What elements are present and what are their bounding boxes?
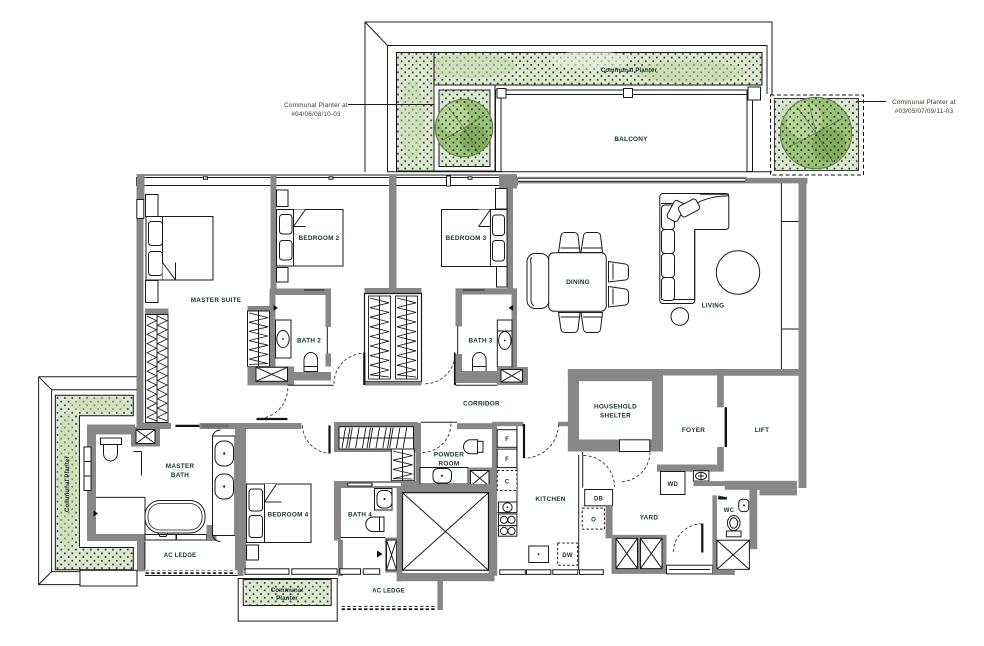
svg-text:Communal Planter at: Communal Planter at	[892, 99, 956, 106]
svg-text:BATH 2: BATH 2	[297, 338, 321, 345]
svg-text:BATH: BATH	[171, 472, 189, 479]
svg-text:F: F	[505, 457, 509, 463]
svg-text:HOUSEHOLD: HOUSEHOLD	[594, 404, 637, 411]
svg-text:MASTER SUITE: MASTER SUITE	[191, 297, 242, 304]
svg-text:C: C	[505, 480, 510, 486]
svg-text:WD: WD	[668, 482, 679, 488]
svg-text:AC LEDGE: AC LEDGE	[164, 553, 197, 559]
svg-text:BATH 3: BATH 3	[468, 338, 492, 345]
svg-text:BEDROOM 2: BEDROOM 2	[299, 235, 340, 242]
svg-text:KITCHEN: KITCHEN	[535, 496, 565, 503]
svg-text:BEDROOM 3: BEDROOM 3	[446, 235, 487, 242]
svg-text:POWDER: POWDER	[434, 452, 464, 459]
svg-text:#03/05/07/09/11-03: #03/05/07/09/11-03	[895, 108, 954, 115]
svg-text:DINING: DINING	[566, 279, 590, 286]
svg-text:ROOM: ROOM	[439, 461, 460, 468]
svg-text:Communal Planter at: Communal Planter at	[284, 102, 348, 109]
svg-text:LIVING: LIVING	[702, 303, 725, 310]
svg-text:BEDROOM 4: BEDROOM 4	[268, 512, 309, 519]
svg-text:AC LEDGE: AC LEDGE	[372, 589, 405, 595]
svg-text:BATH 4: BATH 4	[348, 512, 372, 519]
svg-text:MASTER: MASTER	[166, 463, 195, 470]
svg-text:Planter: Planter	[276, 596, 298, 602]
svg-text:O: O	[591, 518, 596, 524]
svg-text:FOYER: FOYER	[682, 427, 705, 434]
svg-text:LIFT: LIFT	[755, 427, 770, 434]
svg-text:Communal: Communal	[271, 588, 304, 594]
svg-text:F: F	[505, 437, 509, 443]
svg-text:#04/06/08/10-03: #04/06/08/10-03	[291, 111, 341, 118]
svg-text:YARD: YARD	[640, 515, 659, 522]
svg-text:WC: WC	[724, 508, 735, 514]
svg-text:CORRIDOR: CORRIDOR	[463, 401, 500, 408]
svg-text:Communal Planter: Communal Planter	[65, 455, 71, 512]
svg-text:SHELTER: SHELTER	[600, 413, 631, 420]
svg-text:BALCONY: BALCONY	[614, 136, 648, 143]
svg-text:DB: DB	[594, 497, 604, 503]
svg-text:Communal Planter: Communal Planter	[601, 68, 658, 74]
svg-text:DW: DW	[562, 553, 573, 559]
